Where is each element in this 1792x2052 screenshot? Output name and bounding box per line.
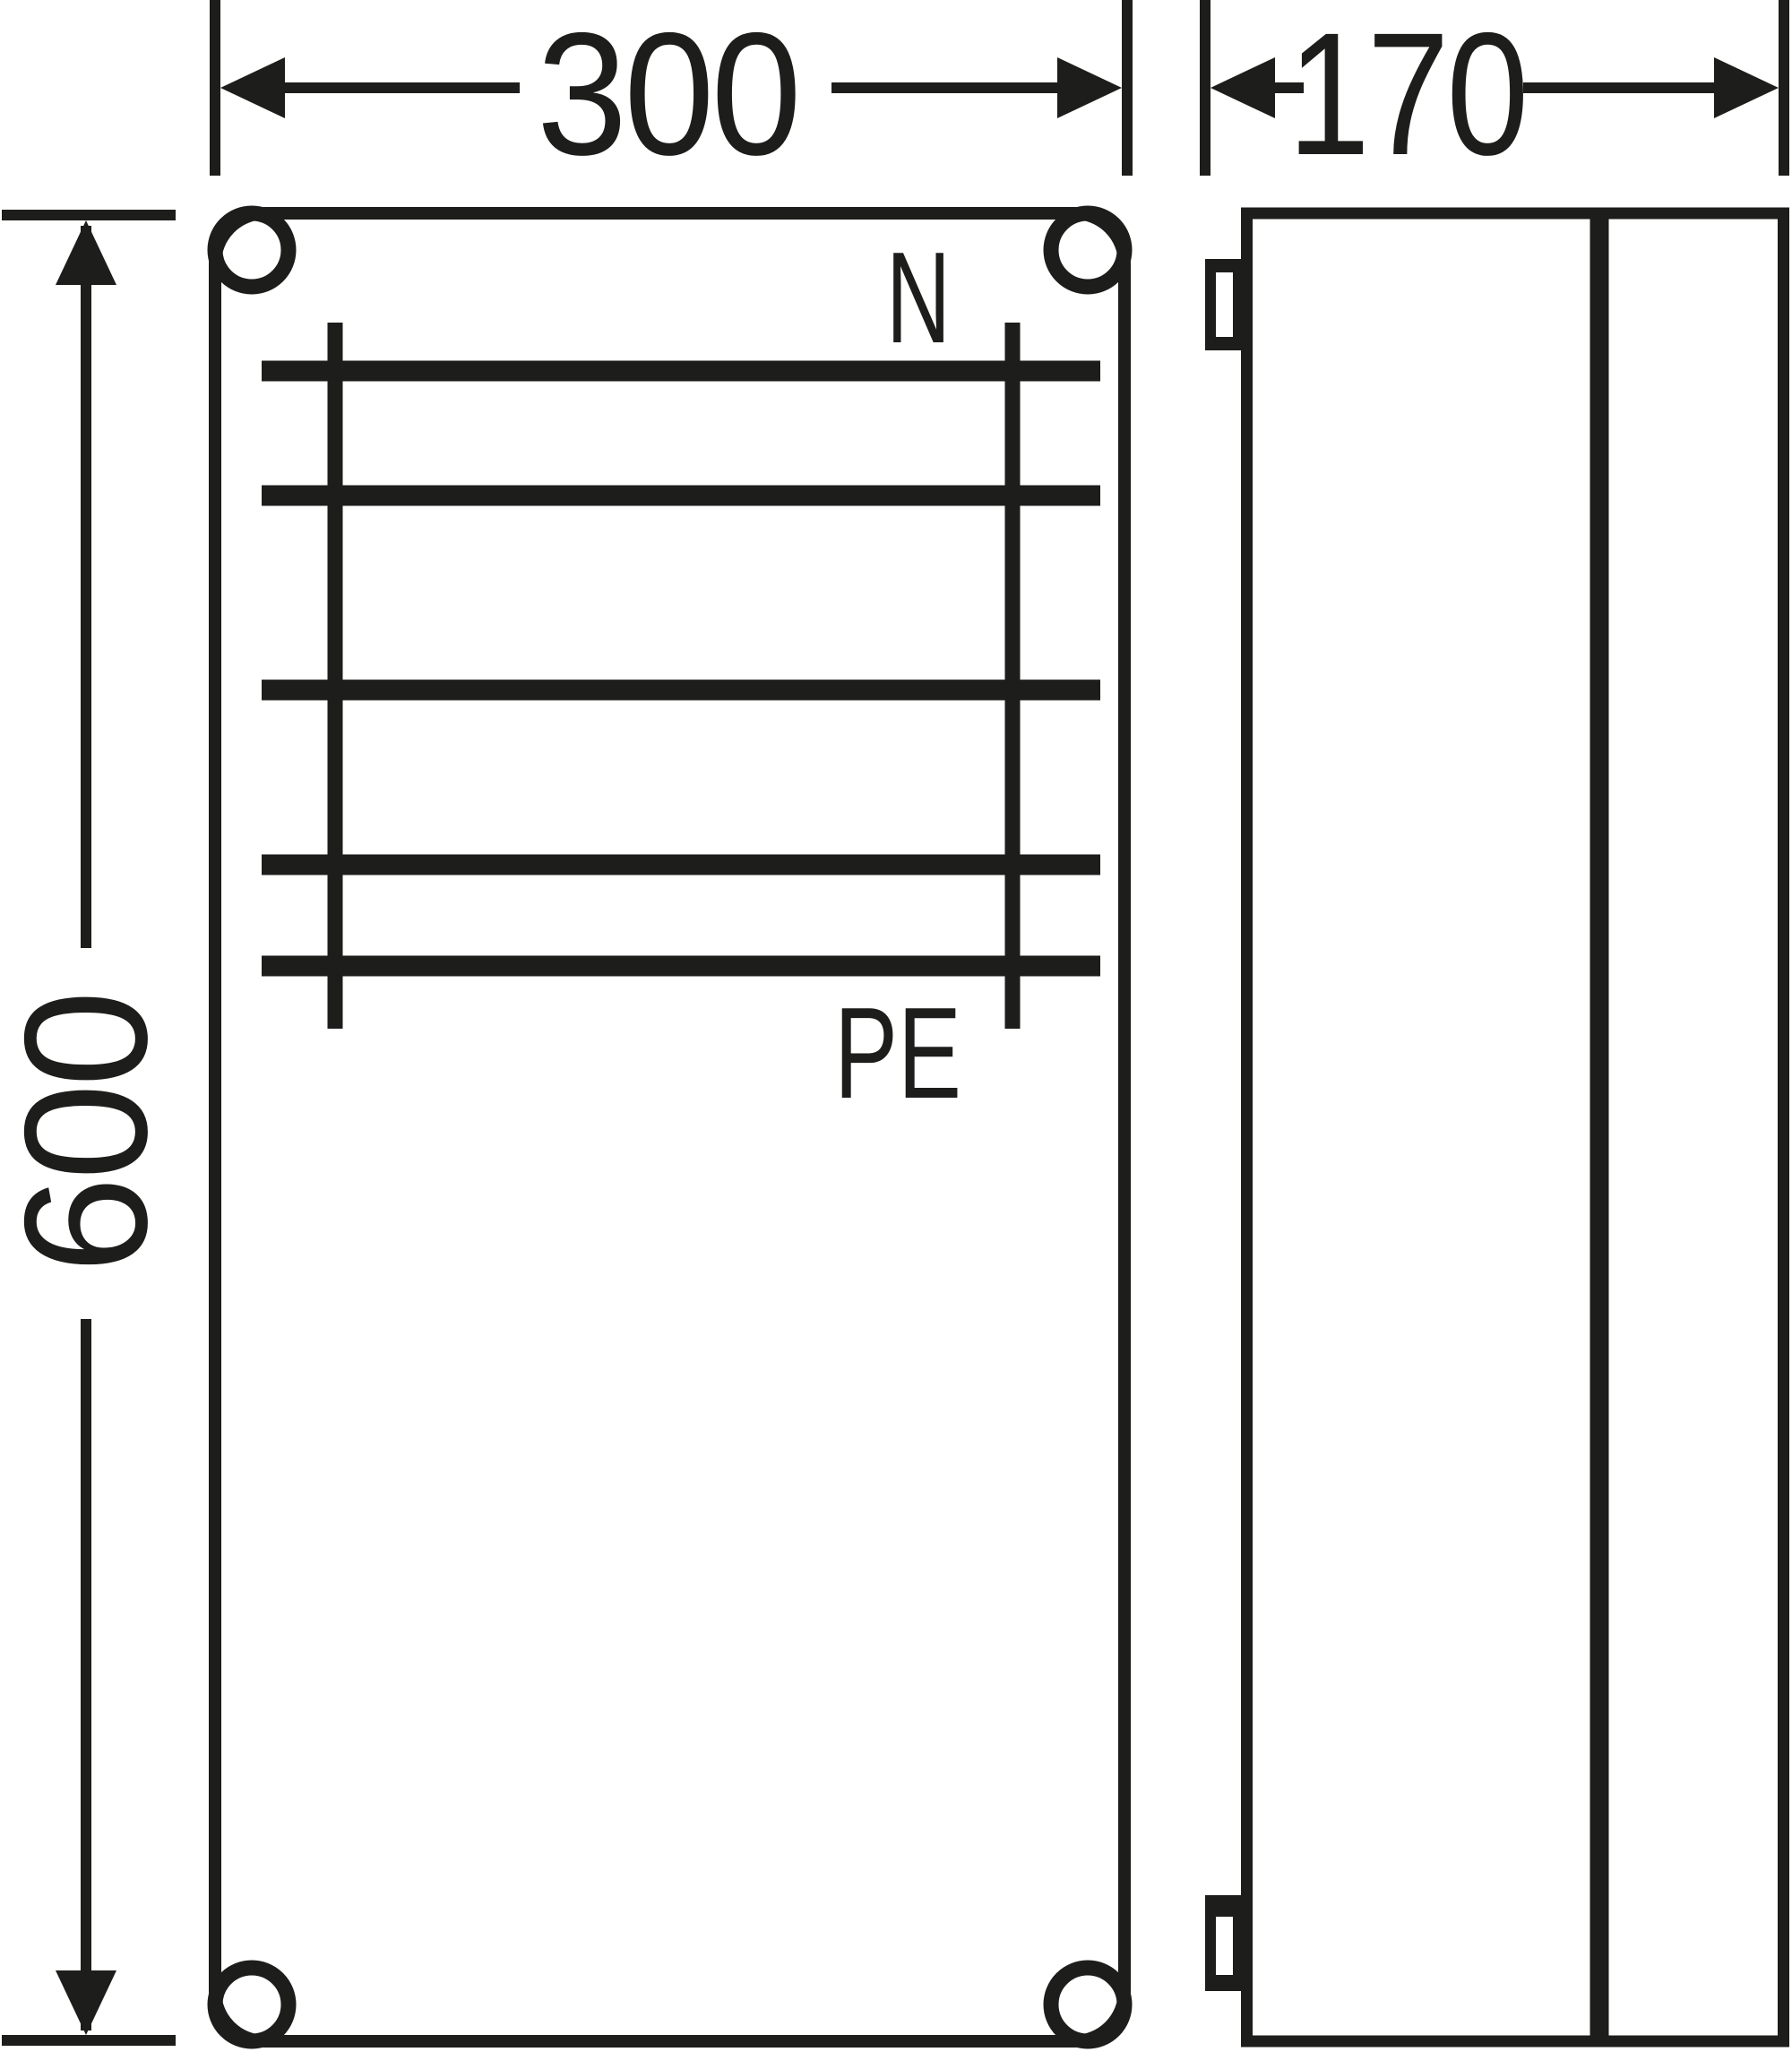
mounting-hole-bottom-left-icon [215, 1968, 289, 2041]
arrowhead-left-icon [1210, 57, 1275, 118]
dimension-side-depth: 170 [1205, 0, 1784, 192]
hinge-tab-top-slot [1216, 272, 1233, 337]
pe-label: PE [834, 980, 961, 1125]
arrowhead-right-icon [1714, 57, 1779, 118]
arrowhead-right-icon [1057, 57, 1122, 118]
arrowhead-down-icon [56, 1970, 116, 2035]
hinge-tab-bottom [1205, 1895, 1244, 1991]
side-view-outline [1247, 213, 1784, 2041]
side-view [1205, 213, 1784, 2041]
mounting-hole-top-left-icon [215, 213, 289, 287]
drawing-svg: N PE 300 [0, 0, 1792, 2052]
mounting-hole-bottom-right-icon [1051, 1968, 1124, 2041]
arrowhead-up-icon [56, 220, 116, 285]
hinge-tab-bottom-slot [1216, 1917, 1233, 1975]
busbar-assembly [262, 323, 1100, 1029]
side-depth-value: 170 [1288, 0, 1526, 192]
arrowhead-left-icon [220, 57, 285, 118]
hinge-tab-top [1205, 259, 1244, 350]
front-height-value: 600 [0, 994, 184, 1273]
neutral-label: N [886, 225, 951, 370]
dimension-front-width: 300 [215, 0, 1127, 192]
mounting-hole-top-right-icon [1051, 213, 1124, 287]
front-view: N PE [215, 213, 1124, 2041]
front-width-value: 300 [537, 0, 798, 192]
enclosure-dimension-drawing: N PE 300 [0, 0, 1792, 2052]
dimension-front-height: 600 [0, 215, 184, 2040]
